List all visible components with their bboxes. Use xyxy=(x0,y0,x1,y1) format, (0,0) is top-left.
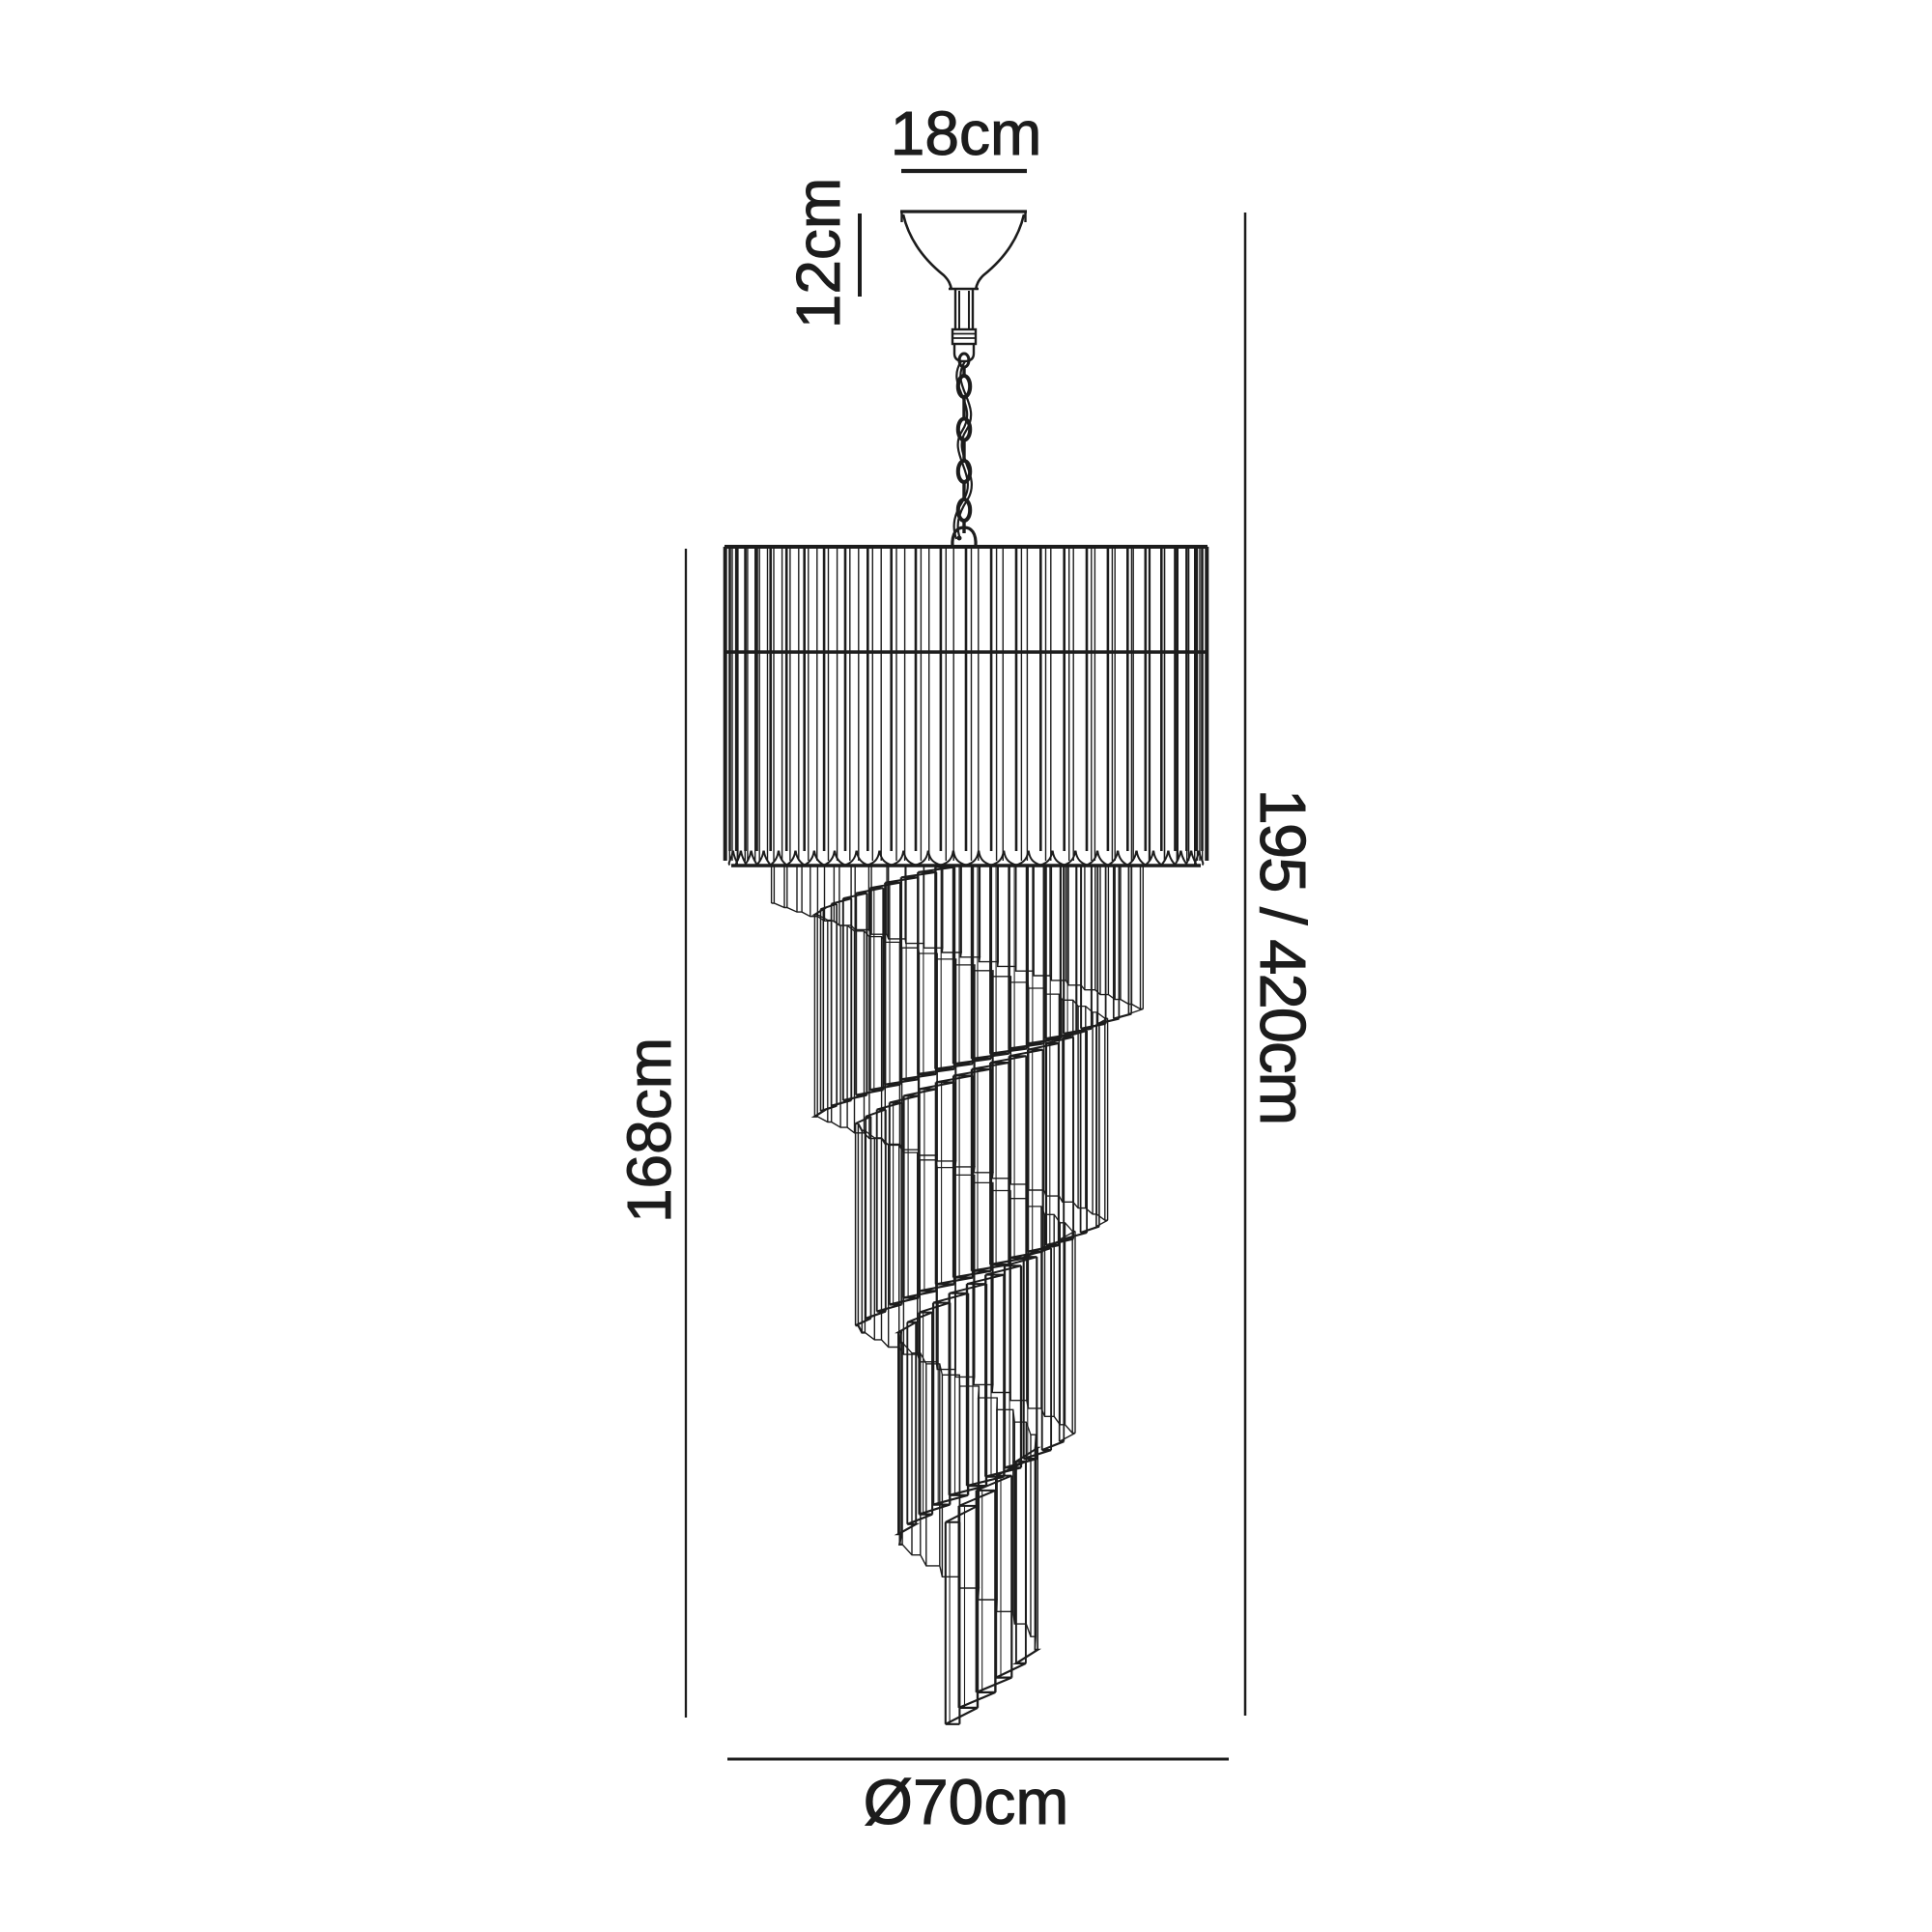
svg-text:18cm: 18cm xyxy=(891,99,1042,168)
svg-text:195 / 420cm: 195 / 420cm xyxy=(1246,789,1319,1124)
svg-text:12cm: 12cm xyxy=(783,178,853,329)
svg-text:168cm: 168cm xyxy=(614,1037,684,1223)
svg-text:Ø70cm: Ø70cm xyxy=(864,1766,1069,1837)
